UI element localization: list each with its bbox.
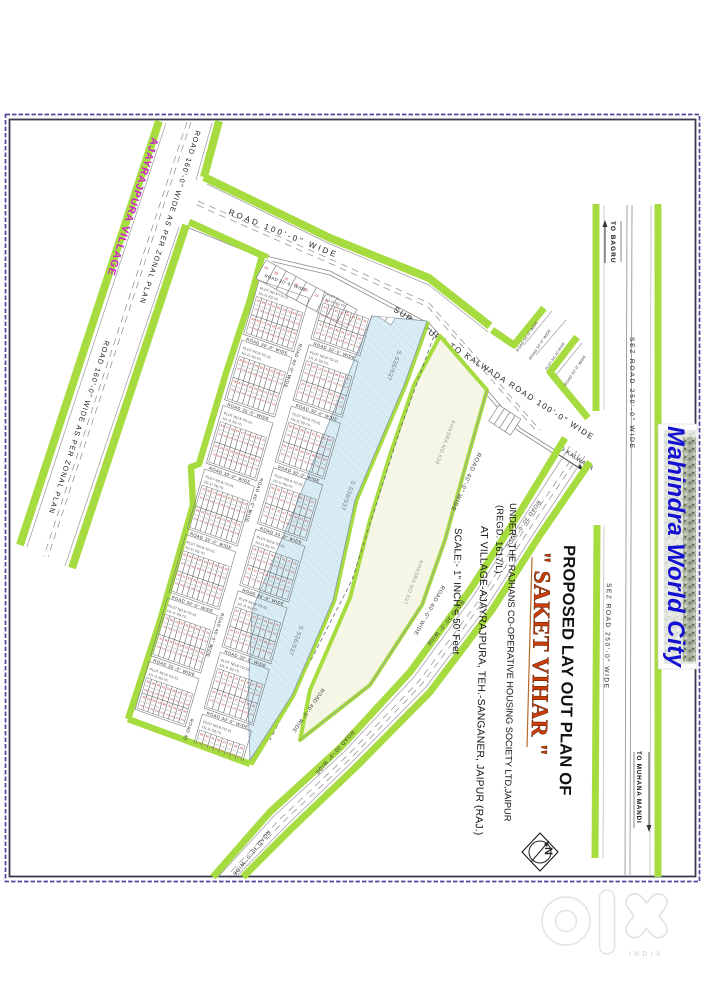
svg-text:(REGD. 1617/L): (REGD. 1617/L) — [494, 505, 505, 574]
svg-text:INDIA: INDIA — [629, 951, 664, 958]
svg-text:TO MUHANA MANDI: TO MUHANA MANDI — [635, 751, 642, 824]
svg-text:TO BAGRU: TO BAGRU — [609, 221, 616, 264]
svg-text:N: N — [542, 847, 554, 855]
svg-text:SEZ ROAD 250'-0" WIDE: SEZ ROAD 250'-0" WIDE — [628, 337, 635, 450]
svg-text:Mahindra World City: Mahindra World City — [662, 426, 689, 669]
svg-text:SCALE:- 1" INCH = 50' Feet: SCALE:- 1" INCH = 50' Feet — [450, 528, 463, 655]
